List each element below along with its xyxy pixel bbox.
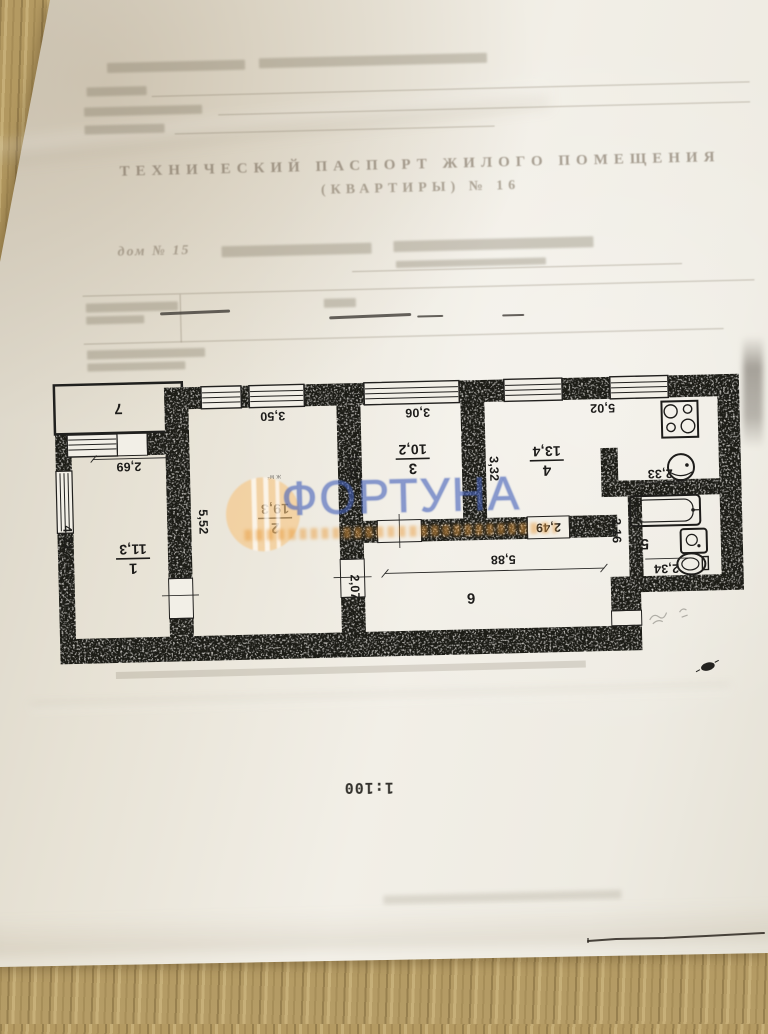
dirt-speck (696, 660, 719, 672)
pen-dash (417, 315, 443, 318)
faded-cell-text (86, 301, 178, 312)
dim-room4-door: 2,49 (536, 520, 561, 535)
form-rule (152, 81, 750, 97)
pencil-scribble (649, 609, 687, 624)
faded-bottom-text (383, 890, 621, 905)
document-content: ТЕХНИЧЕСКИЙ ПАСПОРТ ЖИЛОГО ПОМЕЩЕНИЯ (КВ… (0, 0, 768, 1034)
dim-kitchen-sink: 2,33 (647, 466, 672, 481)
faded-cell-text (86, 315, 144, 324)
dim-room2-width: 3,50 (260, 409, 285, 424)
room1-room2-door (162, 578, 200, 619)
faded-text-bar (84, 124, 164, 135)
svg-text:13,4: 13,4 (532, 443, 561, 460)
svg-text:4: 4 (542, 461, 551, 478)
dim-room4-depth: 3,32 (487, 456, 502, 481)
room-4-label: 4 13,4 (529, 443, 564, 479)
room-5-label: 5 (640, 535, 649, 552)
dim-room3-depth: 3,34 (346, 454, 361, 479)
stove-icon (661, 401, 698, 438)
svg-text:19,3: 19,3 (260, 501, 289, 518)
dim-hall-length: 5,88 (490, 552, 515, 567)
room-1-label: 1 11,3 (116, 541, 151, 577)
room1-side-window (56, 471, 74, 533)
dim-bath-depth: 2,16 (609, 518, 624, 543)
dim-bath-width: 2,34 (654, 561, 679, 576)
faded-cell-text (87, 361, 185, 371)
room3-window (364, 381, 460, 405)
svg-text:11,3: 11,3 (119, 541, 147, 558)
form-rule (175, 126, 495, 135)
balcony-window (67, 434, 118, 457)
kitchen-window-a (504, 378, 563, 401)
table-rule (83, 279, 755, 296)
faded-text-bar (84, 105, 202, 117)
wash-basin-icon (681, 529, 708, 554)
door-openings (117, 421, 642, 638)
balcony-door (117, 433, 148, 456)
faded-text-bar (259, 53, 487, 69)
table-divider (180, 294, 182, 342)
room3-hall-door (377, 514, 422, 549)
faded-address-bar (221, 243, 371, 258)
floor-plan: 1 11,3 2 19,3 ж м² 3 10,2 4 13,4 5 6 7 2… (29, 359, 757, 696)
dim-hall-width: 2,07 (348, 574, 363, 599)
svg-text:10,2: 10,2 (398, 441, 427, 458)
entrance-door (611, 610, 641, 626)
room-7-label: 7 (114, 400, 123, 417)
svg-text:3: 3 (409, 460, 418, 477)
faded-cell-text (87, 348, 205, 360)
faded-caption-bar (116, 661, 586, 679)
faded-address-bar (393, 236, 593, 252)
form-rule (218, 101, 750, 115)
toilet-icon (677, 553, 709, 575)
faded-text-bar (107, 60, 245, 73)
pen-dash (502, 314, 524, 317)
svg-text:2: 2 (271, 519, 280, 536)
scale-label: 1:100 (331, 779, 407, 798)
room-3-label: 3 10,2 (395, 441, 430, 477)
address-visible-text: дом № 15 (117, 243, 190, 260)
dim-room3-width: 3,06 (405, 405, 430, 420)
kitchen-window-b (610, 375, 669, 398)
dim-kitchen-width: 5,02 (590, 401, 615, 416)
faded-cell-text (324, 298, 356, 308)
address-line: дом № 15 (117, 243, 190, 261)
room-6-label: 6 (467, 589, 476, 606)
room-2-note: ж м² (266, 473, 281, 480)
svg-text:1: 1 (129, 559, 138, 576)
dim-room1-depth: 4,21 (60, 525, 75, 550)
dim-room2-depth: 5,52 (196, 509, 211, 534)
room-2-label: 2 19,3 (258, 501, 293, 537)
room2-window-a (201, 386, 242, 409)
room2-window-b (249, 384, 305, 407)
pen-dash (329, 313, 411, 319)
dim-balcony-window: 2,69 (116, 459, 141, 474)
faded-text-bar (87, 86, 147, 96)
